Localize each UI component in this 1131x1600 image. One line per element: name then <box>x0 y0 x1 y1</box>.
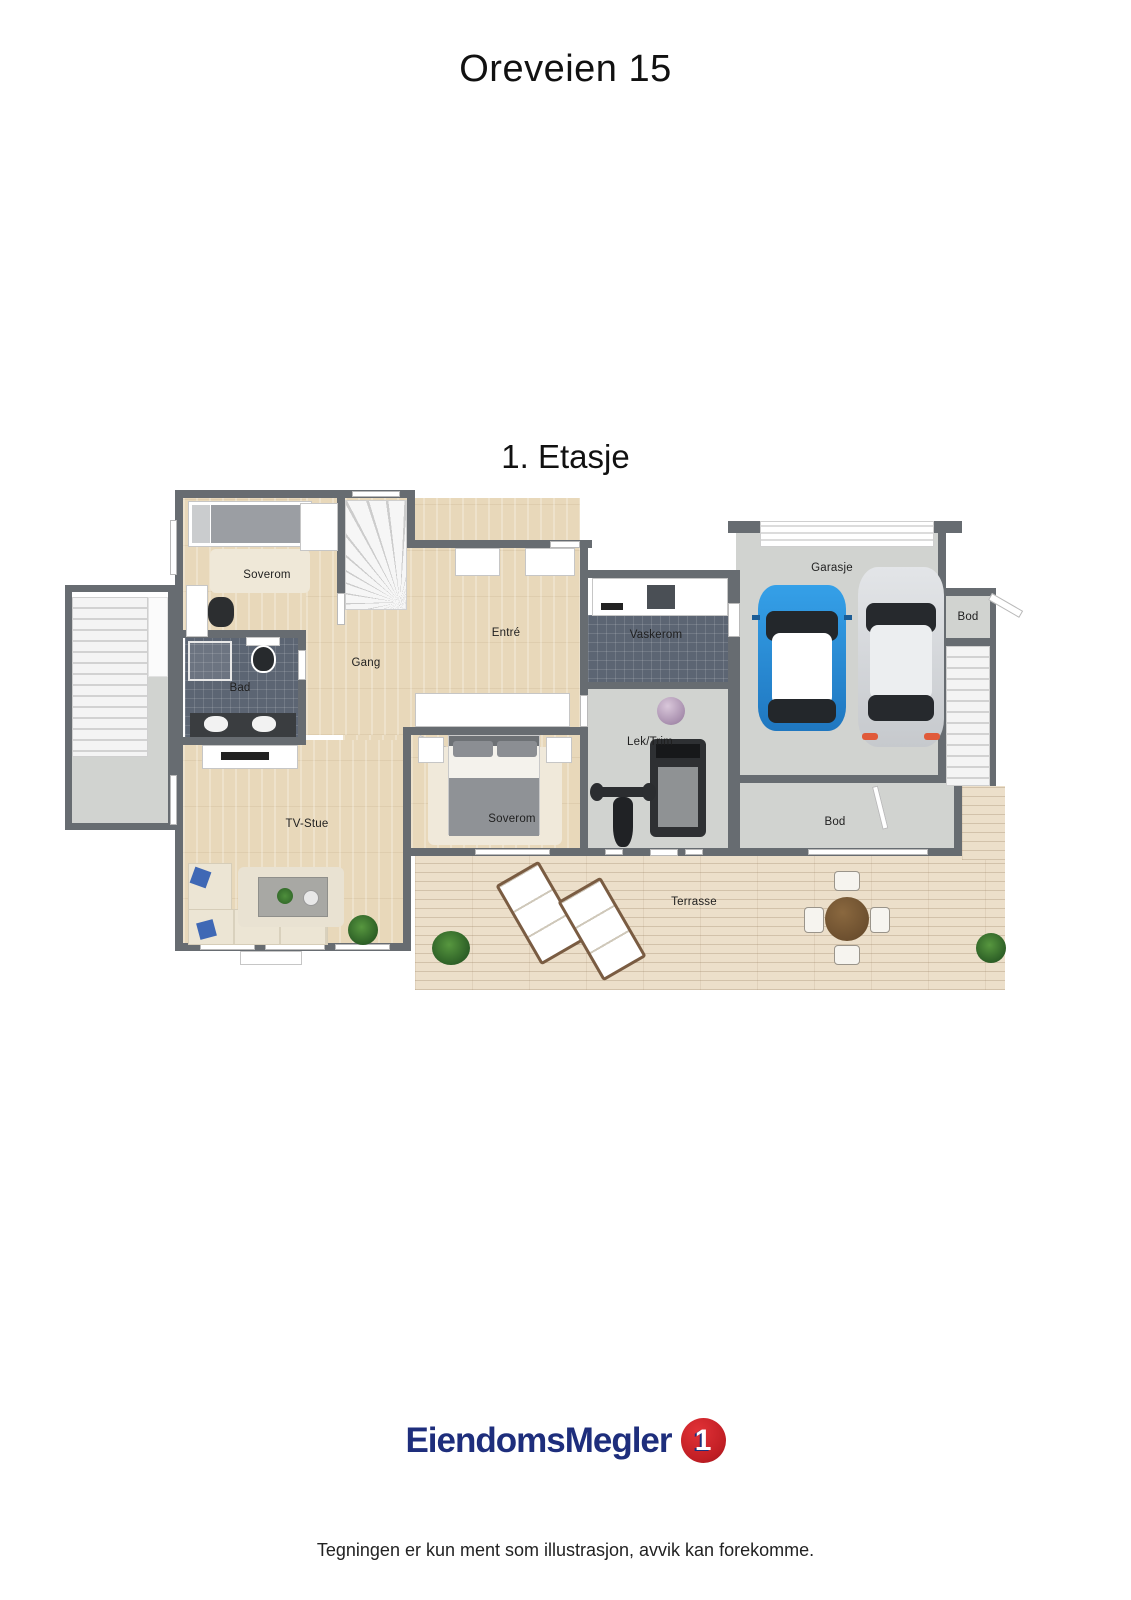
car-mirror <box>844 615 852 620</box>
appliance <box>601 603 623 610</box>
door-opening <box>337 593 345 625</box>
desk-chair <box>208 597 234 627</box>
room-label-lek-trim: Lek/Trim <box>627 736 673 748</box>
terrasse-deck <box>415 856 1005 990</box>
pillow <box>497 741 537 757</box>
car-blue <box>758 585 846 731</box>
sideboard <box>415 693 570 727</box>
terrace-table <box>825 897 869 941</box>
terrace-chair <box>804 907 824 933</box>
wall <box>990 646 996 786</box>
exterior-stair-right <box>946 646 990 786</box>
floor-plan: Soverom Bad Gang Entré Vaskerom Soverom … <box>60 485 1010 1000</box>
room-label-soverom-mid: Soverom <box>488 813 535 825</box>
mattress <box>211 505 308 543</box>
coffee-table <box>258 877 328 917</box>
terrace-chair <box>870 907 890 933</box>
wall <box>728 521 762 533</box>
room-label-soverom-top: Soverom <box>243 569 290 581</box>
bed-single <box>188 501 312 547</box>
wall <box>403 856 411 951</box>
window <box>170 775 177 825</box>
brand-name: EiendomsMegler <box>405 1421 671 1461</box>
disclaimer-text: Tegningen er kun ment som illustrasjon, … <box>0 1540 1131 1561</box>
window <box>685 849 703 855</box>
brand-badge-number: 1 <box>695 1424 712 1458</box>
brand-badge-one-icon: 1 <box>681 1418 726 1463</box>
shower <box>188 641 232 681</box>
wardrobe <box>455 548 500 576</box>
desk <box>186 585 208 637</box>
exercise-ball <box>657 697 685 725</box>
brand-logo: EiendomsMegler 1 <box>0 1418 1131 1463</box>
table-tray <box>303 890 319 906</box>
room-label-bod-right: Bod <box>957 611 978 623</box>
stair-treads <box>72 597 148 757</box>
window <box>808 849 928 855</box>
vanity <box>190 713 296 737</box>
wall <box>407 727 584 735</box>
car-roof <box>772 633 832 705</box>
wall <box>938 638 996 646</box>
weight-bench <box>593 783 653 847</box>
wall <box>932 521 962 533</box>
terrasse-deck-side <box>962 786 1005 860</box>
wall <box>183 737 306 745</box>
stair-wall-face <box>148 597 168 677</box>
entry-step <box>240 951 302 965</box>
table-plant <box>277 888 293 904</box>
page-title: Oreveien 15 <box>0 48 1131 91</box>
wall <box>728 775 962 783</box>
wall <box>938 588 996 596</box>
window <box>605 849 623 855</box>
room-label-gang: Gang <box>352 657 381 669</box>
tv-console <box>202 745 298 769</box>
room-vaskerom-floor <box>588 615 728 685</box>
window <box>352 491 400 497</box>
pillow <box>453 741 493 757</box>
nightstand <box>418 737 444 763</box>
laundry-counter <box>592 578 728 616</box>
window <box>475 849 550 855</box>
door-opening <box>580 695 588 727</box>
car-taillight <box>862 733 878 740</box>
wall <box>298 630 306 745</box>
stair-landing <box>72 757 168 823</box>
room-label-terrasse: Terrasse <box>671 896 717 908</box>
room-label-vaskerom: Vaskerom <box>630 629 683 641</box>
wardrobe <box>525 548 575 576</box>
nightstand <box>546 737 572 763</box>
room-label-bad: Bad <box>229 682 250 694</box>
wall <box>403 727 411 856</box>
car-taillight <box>924 733 940 740</box>
room-label-tv-stue: TV-Stue <box>286 818 329 830</box>
garage-door <box>760 521 934 547</box>
grass-plant <box>432 931 470 965</box>
wall <box>337 498 345 593</box>
car-rear-window <box>768 699 836 723</box>
wall <box>584 570 736 578</box>
weight-plate <box>590 783 604 801</box>
treadmill <box>650 739 706 837</box>
grass-plant <box>976 933 1006 963</box>
soundbar <box>221 752 269 760</box>
terrace-door <box>650 849 678 856</box>
laundry-sink <box>645 583 677 611</box>
room-label-bod-bottom: Bod <box>824 816 845 828</box>
room-label-entre: Entré <box>492 627 521 639</box>
exterior-stair-left <box>65 585 175 830</box>
door-opening <box>728 603 740 637</box>
car-rear-window <box>868 695 934 721</box>
car-silver <box>858 567 944 747</box>
blanket <box>449 778 539 836</box>
room-label-garasje: Garasje <box>811 562 853 574</box>
door-opening <box>298 650 306 680</box>
weight-plate <box>642 783 656 801</box>
toilet <box>251 645 276 673</box>
pillow <box>192 505 210 543</box>
page: Oreveien 15 1. Etasje <box>0 0 1131 1600</box>
terrace-chair <box>834 871 860 891</box>
wall <box>588 682 728 689</box>
wall <box>954 775 962 856</box>
interior-staircase <box>345 500 407 610</box>
window <box>170 520 177 575</box>
bench-seat <box>613 797 633 847</box>
sink <box>204 716 228 732</box>
treadmill-belt <box>658 767 698 827</box>
car-roof <box>870 625 932 699</box>
front-door <box>550 541 580 548</box>
floor-plant <box>348 915 378 945</box>
sink <box>252 716 276 732</box>
wardrobe <box>300 503 338 551</box>
terrace-chair <box>834 945 860 965</box>
car-mirror <box>752 615 760 620</box>
floor-title: 1. Etasje <box>0 438 1131 476</box>
